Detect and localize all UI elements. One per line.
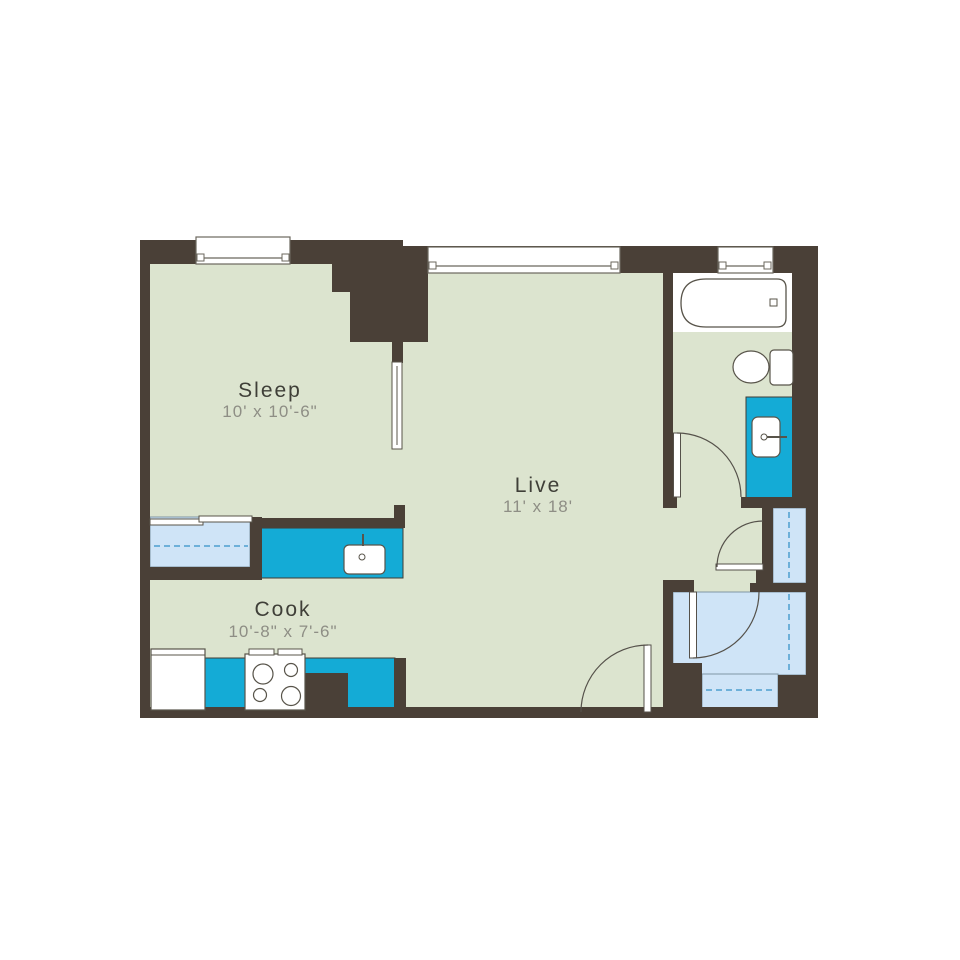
bathtub-drain	[770, 299, 777, 306]
stove-burner	[253, 664, 273, 684]
wall-segment	[332, 263, 403, 292]
window-jamb	[282, 254, 289, 261]
wall-segment	[140, 567, 262, 580]
kitchen-sink-drain	[359, 554, 365, 560]
wall-segment	[663, 580, 694, 592]
window-jamb	[197, 254, 204, 261]
entry-door-leaf	[644, 645, 651, 712]
walkin-closet-door-leaf	[690, 592, 697, 658]
window-jamb	[764, 262, 771, 269]
room-dimensions-cook: 10'-8" x 7'-6"	[228, 622, 337, 641]
room-label-sleep: Sleep	[238, 379, 302, 402]
stove-burner	[254, 689, 267, 702]
wall-segment	[392, 342, 403, 363]
kitchen-sink	[344, 545, 385, 574]
wall-segment	[403, 264, 428, 342]
room-label-cook: Cook	[254, 598, 311, 621]
wall-segment	[394, 658, 406, 718]
stove-control-panel	[249, 649, 274, 655]
window	[428, 247, 620, 273]
wall-segment	[140, 707, 818, 718]
wall-segment	[140, 242, 150, 718]
wall-segment	[778, 675, 806, 713]
stove-burner	[285, 664, 298, 677]
wall-segment	[663, 592, 673, 663]
wall-segment	[663, 497, 677, 508]
wall-segment	[663, 272, 673, 497]
closet-sliding-door	[199, 516, 252, 522]
stove-burner	[282, 687, 301, 706]
floor-plan-page: Sleep 10' x 10'-6" Live 11' x 18' Cook 1…	[0, 0, 960, 960]
stove-control-panel	[278, 649, 302, 655]
linen-closet-door-leaf	[716, 564, 763, 570]
wall-segment	[756, 569, 773, 583]
walkin-closet-floor-lower	[702, 674, 778, 712]
wall-segment	[394, 505, 405, 528]
wall-segment	[305, 673, 348, 711]
room-dimensions-live: 11' x 18'	[503, 497, 573, 516]
vanity-faucet	[761, 434, 767, 440]
wall-segment	[350, 292, 403, 342]
bathroom-door-leaf	[674, 433, 681, 497]
window-jamb	[429, 262, 436, 269]
window-jamb	[719, 262, 726, 269]
room-label-live: Live	[515, 474, 562, 497]
wall-segment	[792, 273, 808, 508]
toilet-bowl	[733, 351, 769, 383]
window-jamb	[611, 262, 618, 269]
floor-plan-drawing: Sleep 10' x 10'-6" Live 11' x 18' Cook 1…	[0, 0, 960, 960]
wall-segment	[741, 497, 815, 508]
closet-sliding-door	[150, 519, 203, 525]
wall-segment	[253, 518, 405, 528]
toilet-tank	[770, 350, 793, 385]
room-dimensions-sleep: 10' x 10'-6"	[222, 402, 317, 421]
wall-segment	[663, 663, 702, 713]
refrigerator	[151, 649, 205, 710]
wall-segment	[750, 583, 815, 592]
window	[196, 237, 290, 264]
